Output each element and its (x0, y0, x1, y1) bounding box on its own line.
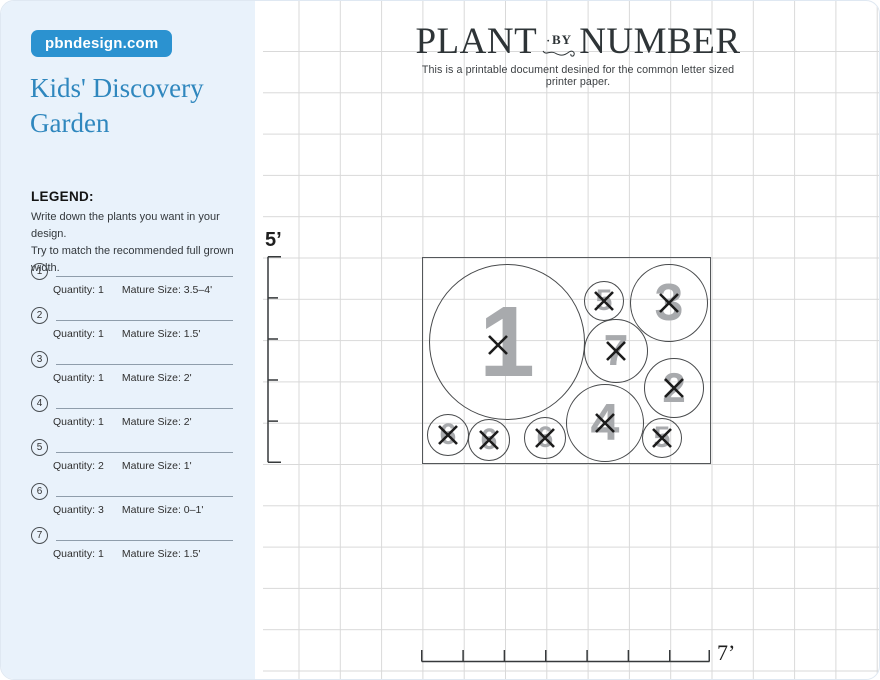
legend-item-2: 2 Quantity: 1 Mature Size: 1.5' (31, 307, 233, 351)
plant-circle-6b: 6 (468, 419, 510, 461)
plant-circle-6a: 6 (427, 414, 469, 456)
page-title: PLANT ·BY NUMBER (408, 23, 748, 61)
plant-circle-2: 2 (644, 358, 704, 418)
plant-circle-5a: 5 (584, 281, 624, 321)
legend-item-6: 6 Quantity: 3 Mature Size: 0–1' (31, 483, 233, 527)
x-mark-icon (651, 427, 674, 450)
quantity-label: Quantity: (53, 548, 95, 560)
mature-size-label: Mature Size: (122, 548, 181, 560)
plant-name-write-line[interactable] (56, 439, 233, 453)
quantity-label: Quantity: (53, 328, 95, 340)
mature-size-value: 2' (184, 372, 192, 384)
x-mark-icon (658, 292, 681, 315)
mature-size-value: 1' (184, 460, 192, 472)
quantity-value: 1 (98, 284, 104, 296)
flourish-icon (542, 48, 576, 58)
mature-size-value: 1.5' (184, 548, 201, 560)
legend-number-badge: 4 (31, 395, 48, 412)
legend-item-5: 5 Quantity: 2 Mature Size: 1' (31, 439, 233, 483)
quantity-label: Quantity: (53, 504, 95, 516)
quantity-value: 1 (98, 416, 104, 428)
plant-by-number-page: pbndesign.com Kids' Discovery Garden LEG… (0, 0, 880, 680)
mature-size-label: Mature Size: (122, 328, 181, 340)
site-url-badge[interactable]: pbndesign.com (31, 30, 172, 57)
legend-description-line1: Write down the plants you want in your d… (31, 209, 255, 243)
plant-name-write-line[interactable] (56, 395, 233, 409)
plant-name-write-line[interactable] (56, 307, 233, 321)
title-word-number: NUMBER (579, 23, 740, 61)
legend-item-1: 1 Quantity: 1 Mature Size: 3.5–4' (31, 263, 233, 307)
plant-name-write-line[interactable] (56, 263, 233, 277)
quantity-value: 3 (98, 504, 104, 516)
ornament-dot: · (546, 35, 551, 47)
x-mark-icon (478, 429, 501, 452)
legend-item-7: 7 Quantity: 1 Mature Size: 1.5' (31, 527, 233, 571)
x-mark-icon (663, 377, 686, 400)
plant-name-write-line[interactable] (56, 527, 233, 541)
plant-circle-1: 1 (429, 264, 585, 420)
mature-size-label: Mature Size: (122, 460, 181, 472)
title-word-by: BY (552, 32, 572, 47)
legend-item-3: 3 Quantity: 1 Mature Size: 2' (31, 351, 233, 395)
mature-size-value: 1.5' (184, 328, 201, 340)
sidebar: pbndesign.com Kids' Discovery Garden LEG… (1, 1, 255, 679)
legend-number-badge: 2 (31, 307, 48, 324)
legend-number-badge: 6 (31, 483, 48, 500)
plant-circle-4: 4 (566, 384, 644, 462)
x-mark-icon (534, 427, 557, 450)
plant-circle-6c: 6 (524, 417, 566, 459)
x-mark-icon (487, 334, 510, 357)
legend-number-badge: 3 (31, 351, 48, 368)
header-subtitle: This is a printable document desined for… (408, 64, 748, 88)
quantity-value: 2 (98, 460, 104, 472)
plant-circle-7: 7 (584, 319, 648, 383)
mature-size-value: 0–1' (184, 504, 204, 516)
x-mark-icon (594, 412, 617, 435)
mature-size-value: 3.5–4' (184, 284, 212, 296)
quantity-label: Quantity: (53, 284, 95, 296)
quantity-value: 1 (98, 548, 104, 560)
legend-item-list: 1 Quantity: 1 Mature Size: 3.5–4' 2 Quan… (31, 263, 233, 571)
plant-name-write-line[interactable] (56, 351, 233, 365)
plant-circle-5b: 5 (642, 418, 682, 458)
mature-size-label: Mature Size: (122, 284, 181, 296)
garden-plot-outline: 1 5 3 7 2 4 5 6 (422, 257, 711, 464)
quantity-label: Quantity: (53, 372, 95, 384)
title-word-plant: PLANT (415, 23, 537, 61)
plant-name-write-line[interactable] (56, 483, 233, 497)
mature-size-label: Mature Size: (122, 372, 181, 384)
mature-size-label: Mature Size: (122, 504, 181, 516)
quantity-label: Quantity: (53, 460, 95, 472)
legend-number-badge: 5 (31, 439, 48, 456)
mature-size-label: Mature Size: (122, 416, 181, 428)
x-mark-icon (593, 290, 616, 313)
x-mark-icon (605, 340, 628, 363)
quantity-value: 1 (98, 328, 104, 340)
document-header: PLANT ·BY NUMBER This is a printable doc… (408, 23, 748, 88)
title-by-ornament: ·BY (542, 32, 576, 58)
design-title: Kids' Discovery Garden (30, 71, 240, 141)
quantity-value: 1 (98, 372, 104, 384)
width-dimension-label: 7’ (717, 640, 735, 666)
plant-circle-3: 3 (630, 264, 708, 342)
height-dimension-label: 5’ (265, 229, 282, 252)
mature-size-value: 2' (184, 416, 192, 428)
legend-number-badge: 7 (31, 527, 48, 544)
legend-heading: LEGEND: (31, 189, 94, 204)
legend-number-badge: 1 (31, 263, 48, 280)
horizontal-ruler (421, 649, 711, 663)
vertical-ruler (267, 256, 283, 464)
legend-item-4: 4 Quantity: 1 Mature Size: 2' (31, 395, 233, 439)
quantity-label: Quantity: (53, 416, 95, 428)
x-mark-icon (437, 424, 460, 447)
